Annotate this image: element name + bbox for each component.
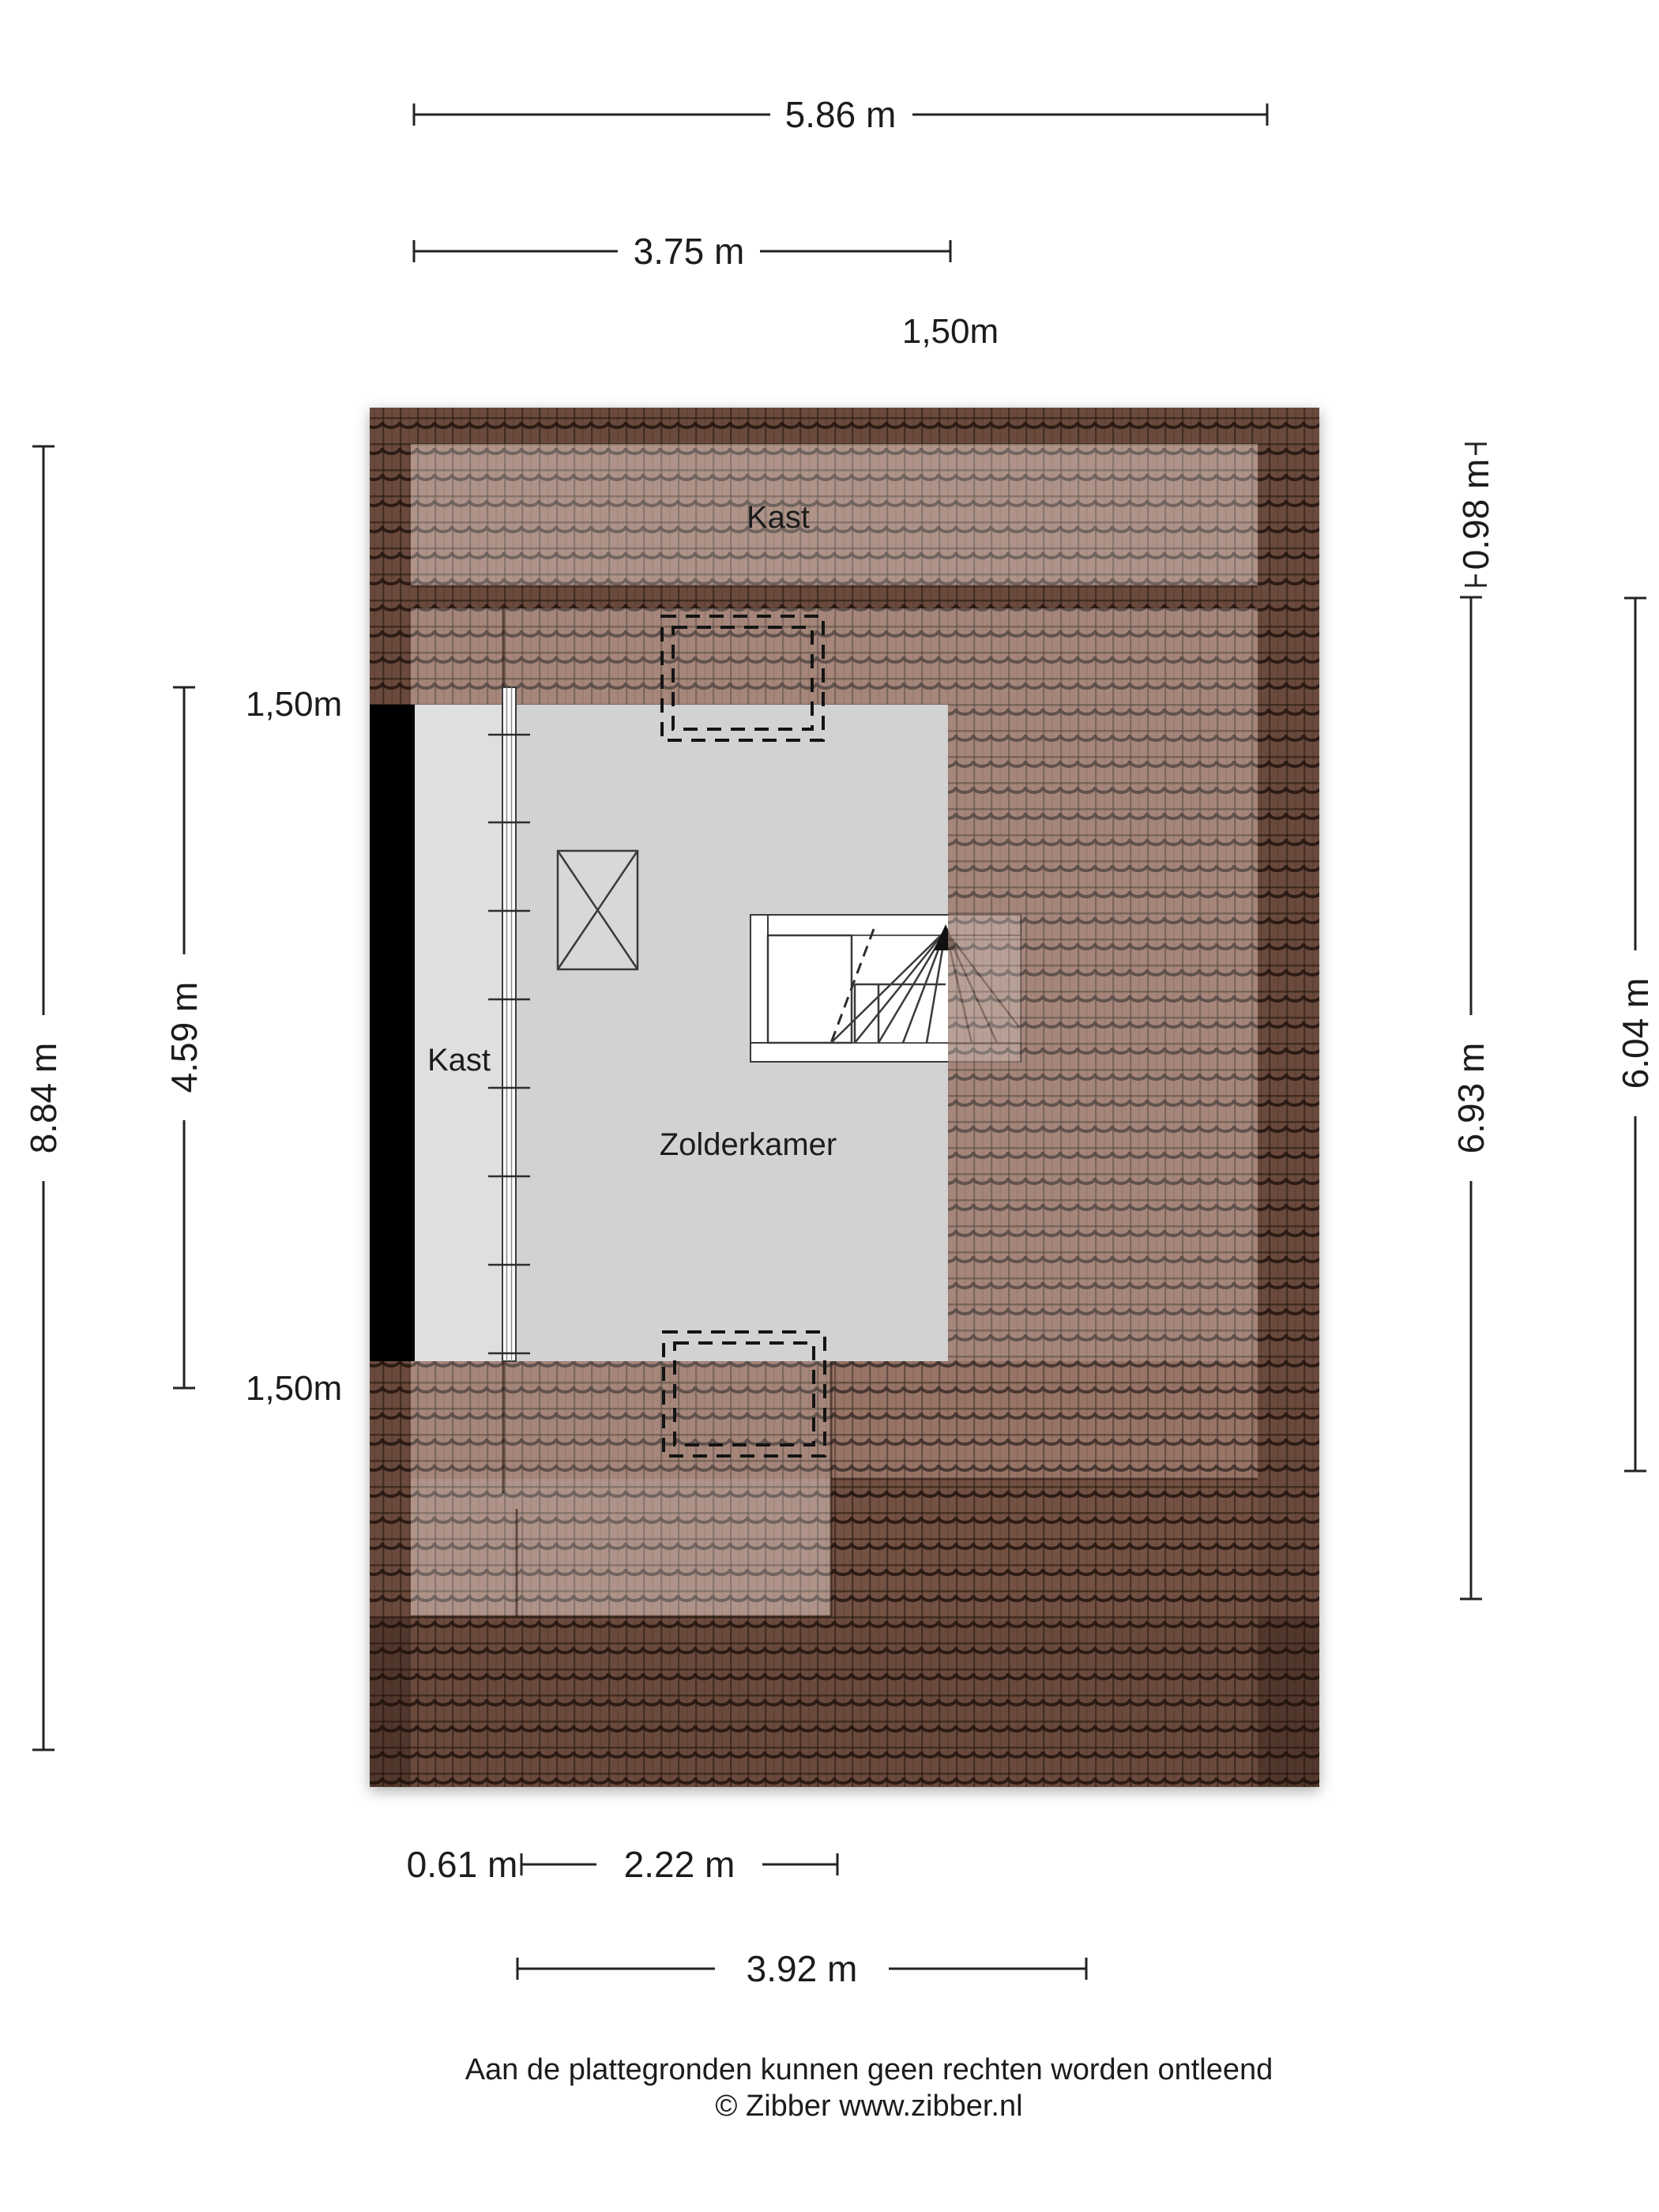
dim-right-total-label: 6.93 m: [1450, 1043, 1492, 1154]
stair-wall-left: [750, 915, 768, 1062]
room-label-zolderkamer: Zolderkamer: [660, 1127, 837, 1162]
roof-plane-lower-left: [411, 1361, 831, 1479]
floorplan-canvas: Kast Kast Zolderkamer 5.86 m 3.75 m 1,50…: [0, 0, 1659, 2212]
roof-margin-right: [1258, 444, 1319, 1787]
staircase: [750, 913, 1021, 1063]
kast-floor: [415, 705, 502, 1361]
dimension-right-room: 6.04 m: [1615, 598, 1656, 1471]
dimension-left-room: 4.59 m: [164, 687, 205, 1388]
footer-copyright: © Zibber www.zibber.nl: [715, 2090, 1022, 2123]
dimension-bottom-total: 3.92 m: [517, 1948, 1086, 1989]
dimension-right-eave: 0.98 m: [1455, 444, 1496, 585]
footer-disclaimer: Aan de plattegronden kunnen geen rechten…: [465, 2053, 1273, 2086]
dim-top-right-offset-label: 1,50m: [902, 312, 999, 351]
dim-left-bottom-offset-label: 1,50m: [246, 1369, 342, 1408]
dimension-left-total: 8.84 m: [23, 446, 64, 1750]
dim-top-total-label: 5.86 m: [785, 94, 897, 135]
roof-plane-lower-right: [831, 1361, 1258, 1479]
dim-right-eave-label: 0.98 m: [1455, 459, 1496, 570]
dim-bottom-left-offset-label: 0.61 m: [407, 1844, 518, 1885]
stair-landing: [768, 935, 852, 1043]
roof-margin-bottom: [370, 1616, 1319, 1787]
chimney-box: [558, 851, 638, 969]
floorplan-drawing: Kast Kast Zolderkamer 5.86 m 3.75 m 1,50…: [0, 0, 1659, 2212]
room-label-kast-top: Kast: [747, 500, 810, 535]
room-label-kast-left: Kast: [427, 1043, 491, 1078]
dim-bottom-inner-label: 2.22 m: [624, 1844, 735, 1885]
roof-plane-top-kast: [411, 444, 1258, 586]
dimension-top-total: 5.86 m: [414, 94, 1267, 135]
roof-band-divider: [411, 586, 1258, 608]
roof-margin-top: [370, 408, 1319, 444]
roof-plane-lower-dormer: [411, 1479, 831, 1616]
roof-shade-lower-right: [831, 1479, 1258, 1616]
dim-left-top-offset-label: 1,50m: [246, 685, 342, 724]
dimension-top-room: 3.75 m: [414, 231, 950, 272]
dimension-bottom-inner: 2.22 m: [521, 1844, 837, 1885]
solid-wall: [370, 705, 415, 1361]
dim-bottom-total-label: 3.92 m: [747, 1948, 858, 1989]
roof-veil-highlight: [948, 913, 1021, 1063]
dim-right-room-label: 6.04 m: [1615, 978, 1656, 1089]
dimension-right-total: 6.93 m: [1450, 597, 1492, 1599]
dim-left-total-label: 8.84 m: [23, 1043, 64, 1154]
dim-top-room-label: 3.75 m: [634, 231, 745, 272]
dim-left-room-label: 4.59 m: [164, 982, 205, 1093]
